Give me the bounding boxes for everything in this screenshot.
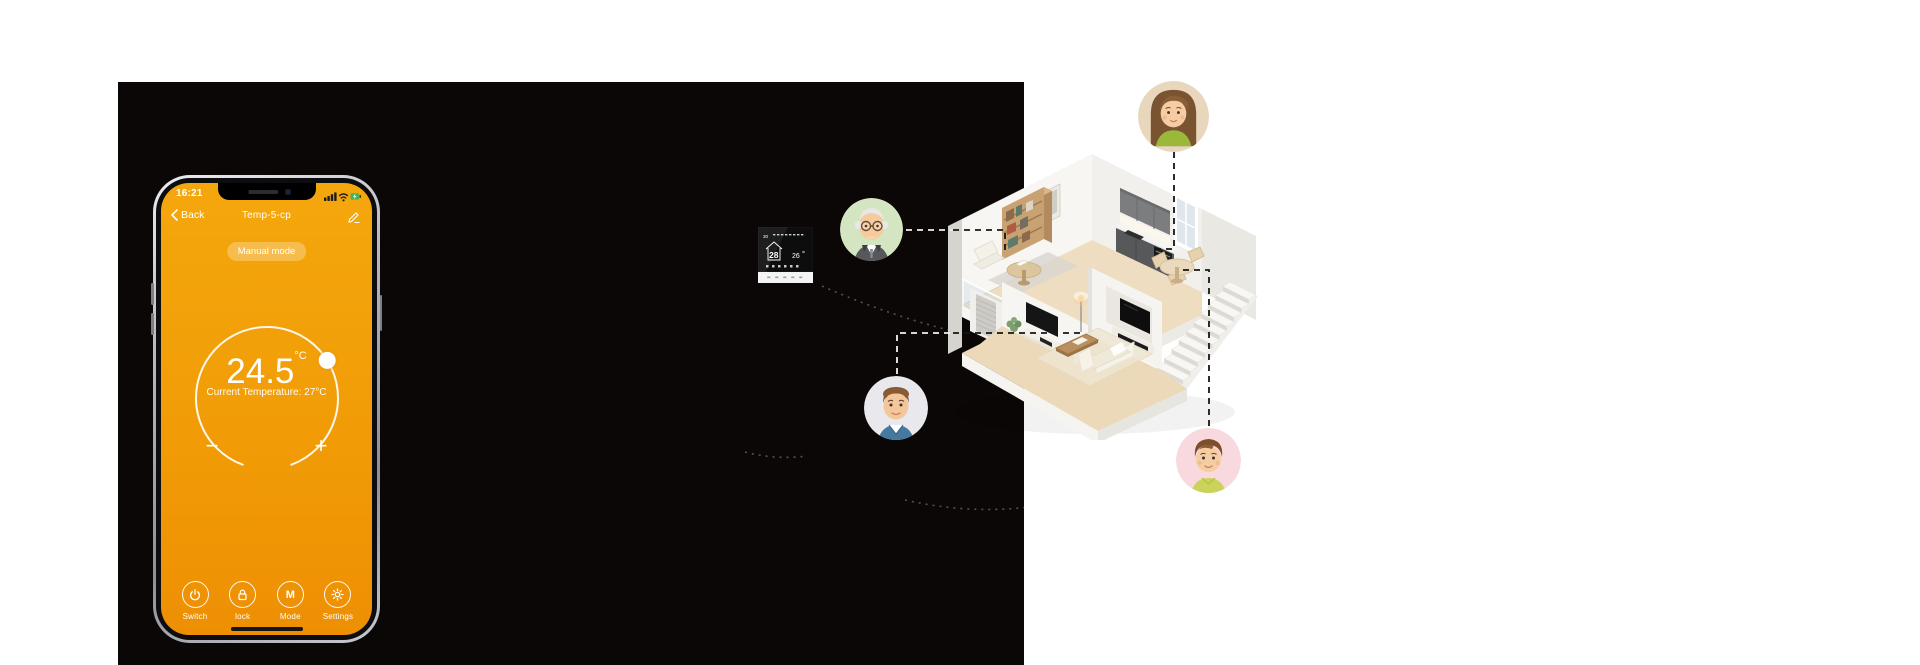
decrease-temp-button[interactable]: − bbox=[199, 433, 225, 459]
scene: 30 28 26 bbox=[0, 0, 1920, 665]
lock-icon bbox=[236, 588, 249, 601]
mode-button[interactable]: M Mode bbox=[268, 581, 312, 621]
volume-up-button bbox=[151, 283, 154, 305]
bottom-toolbar: Switch lock M Mode bbox=[161, 581, 372, 621]
speaker-slot bbox=[248, 190, 278, 194]
house-illustration bbox=[940, 140, 1280, 440]
front-camera bbox=[285, 189, 291, 195]
set-temperature-value: 24.5°C bbox=[161, 351, 372, 389]
wall-thermostat-device: 30 28 26 bbox=[758, 227, 813, 283]
avatar-father bbox=[864, 376, 928, 440]
nav-bar: Back Temp-5-cp bbox=[161, 209, 372, 225]
settings-button[interactable]: Settings bbox=[316, 581, 360, 621]
avatar-grandfather bbox=[840, 198, 903, 261]
mode-badge[interactable]: Manual mode bbox=[227, 242, 307, 261]
thermostat-current-temp: 26 bbox=[792, 253, 800, 260]
avatar-son bbox=[1176, 428, 1241, 493]
battery-charging-icon bbox=[351, 193, 361, 199]
device-title: Temp-5-cp bbox=[161, 210, 372, 221]
edit-button[interactable] bbox=[348, 210, 360, 228]
power-side-button bbox=[380, 295, 383, 331]
phone-notch bbox=[218, 183, 316, 200]
gear-icon bbox=[331, 588, 344, 601]
temp-unit: °C bbox=[294, 350, 306, 362]
switch-button[interactable]: Switch bbox=[173, 581, 217, 621]
mode-m-icon: M bbox=[286, 589, 295, 601]
increase-temp-button[interactable]: + bbox=[308, 433, 334, 459]
thermostat-time: 30 bbox=[763, 234, 769, 239]
current-temperature-label: Current Temperature: 27°C bbox=[161, 387, 372, 398]
thermostat-app-screen: 16:21 bbox=[161, 183, 372, 635]
power-icon bbox=[189, 589, 201, 601]
edit-pen-icon bbox=[348, 211, 360, 223]
cellular-signal-icon bbox=[324, 192, 337, 201]
volume-down-button bbox=[151, 313, 154, 335]
home-indicator[interactable] bbox=[231, 627, 303, 632]
phone-bezel: 16:21 bbox=[156, 178, 377, 640]
status-time: 16:21 bbox=[176, 188, 203, 199]
smartphone: 16:21 bbox=[153, 175, 380, 643]
lock-button[interactable]: lock bbox=[221, 581, 265, 621]
thermostat-set-temp: 28 bbox=[769, 250, 779, 260]
avatar-mother bbox=[1138, 81, 1209, 152]
wifi-icon bbox=[340, 194, 348, 198]
status-icons bbox=[324, 189, 361, 207]
